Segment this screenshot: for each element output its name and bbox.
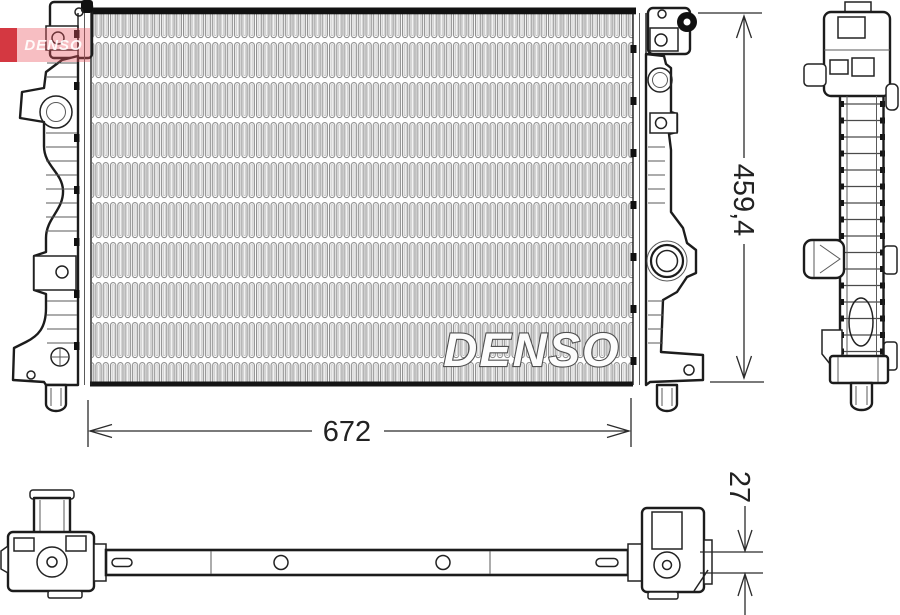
bottom-left-pipe (34, 498, 70, 533)
core-top-header (86, 8, 636, 15)
denso-logo-mark (0, 28, 17, 62)
side-upper-stub (804, 64, 826, 86)
side-bottom-pin (851, 383, 872, 410)
right-mount-bracket (650, 113, 677, 133)
mount-pin-bottom-right (657, 385, 677, 411)
denso-watermark: DENSO (443, 323, 620, 376)
front-view: DENSO (13, 0, 703, 411)
technical-drawing-canvas: DENSO (0, 0, 900, 615)
height-dimension: 459,4 (698, 13, 764, 382)
core-bottom-header (90, 382, 633, 387)
side-view (804, 2, 898, 410)
mount-pin-bottom-left (46, 385, 66, 411)
side-inlet-pipe (804, 240, 844, 278)
denso-logo-text: DENSO (17, 28, 90, 62)
bottom-core-bar (106, 550, 628, 575)
side-core-column (839, 96, 885, 384)
denso-logo: DENSO (0, 28, 90, 62)
left-mount-bracket (34, 256, 76, 290)
width-dimension: 672 (88, 398, 631, 448)
right-tank (631, 8, 704, 411)
bottom-view (1, 490, 712, 599)
depth-dimension-label: 27 (723, 471, 755, 503)
radiator-technical-drawing: DENSO (0, 0, 900, 615)
right-side-plate (631, 13, 647, 385)
height-dimension-label: 459,4 (727, 164, 759, 237)
width-dimension-label: 672 (323, 416, 371, 448)
side-foot (830, 356, 888, 383)
